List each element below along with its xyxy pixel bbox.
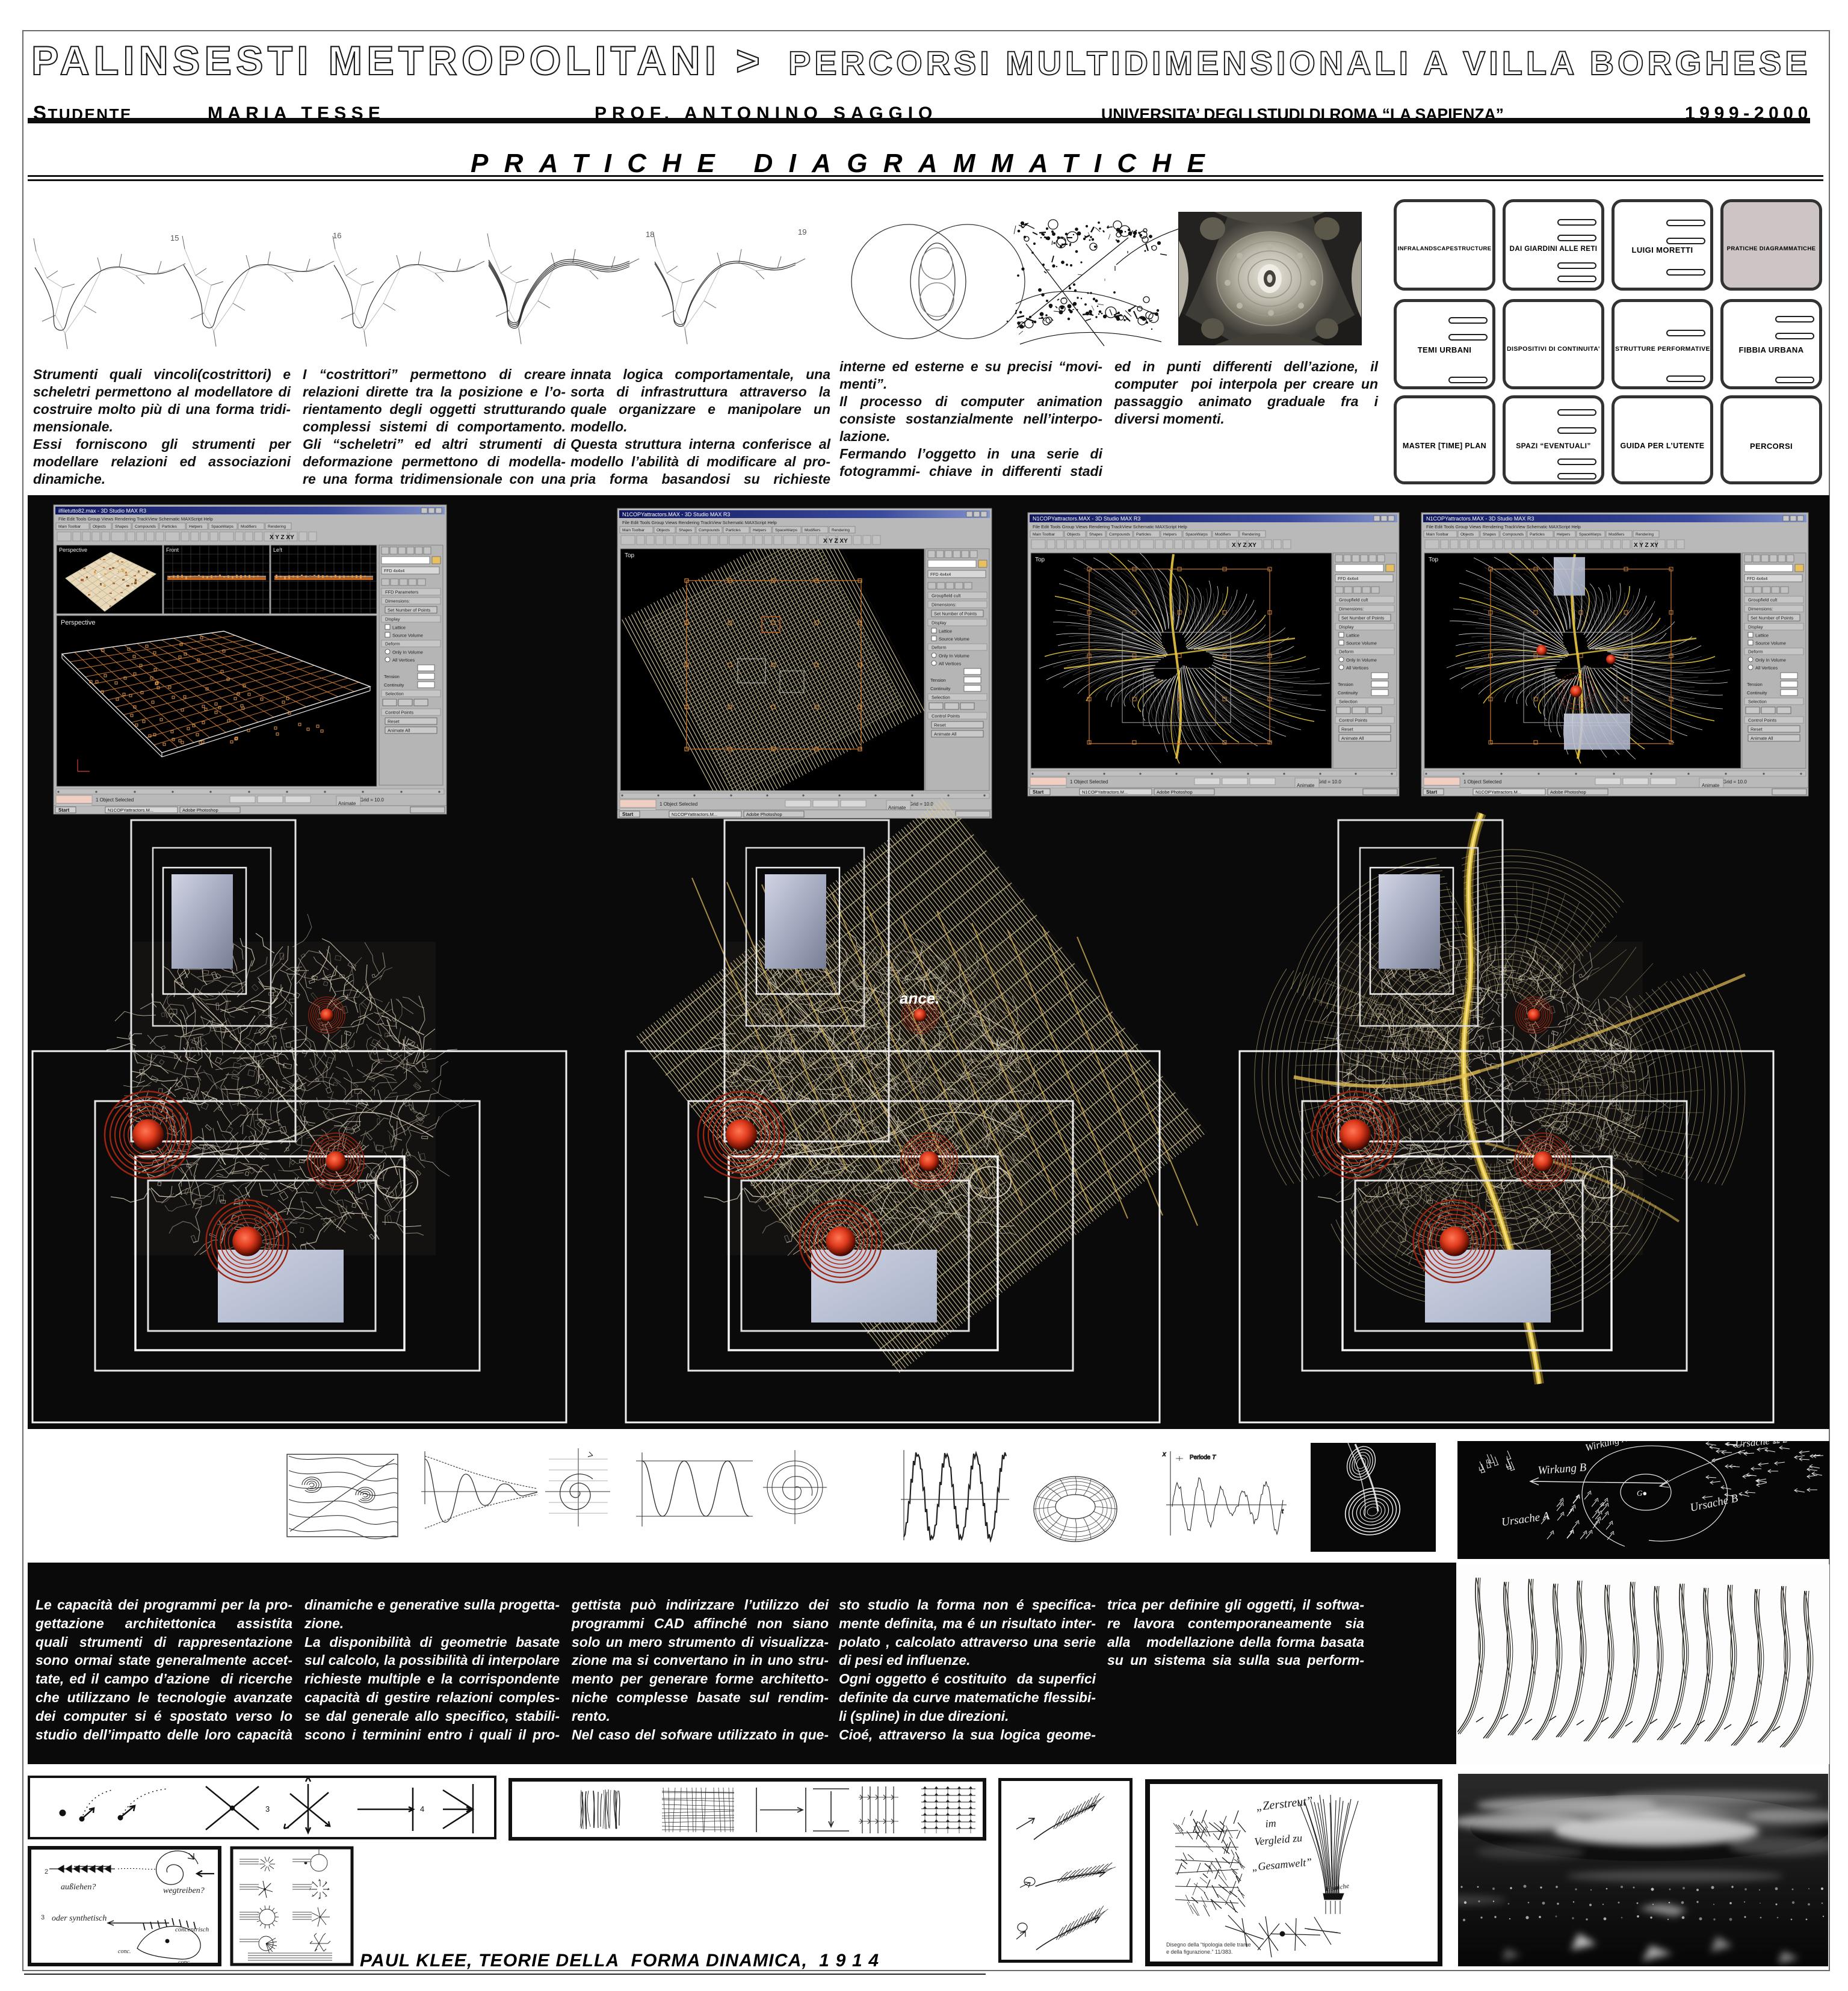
svg-text:Adobe Photoshop: Adobe Photoshop — [1157, 789, 1193, 795]
svg-text:Shapes: Shapes — [1089, 532, 1103, 537]
svg-text:Reset: Reset — [388, 719, 400, 724]
svg-text:Deform: Deform — [1339, 649, 1354, 655]
svg-text:Only In Volume: Only In Volume — [392, 650, 423, 655]
svg-text:Grid = 10.0: Grid = 10.0 — [1723, 779, 1747, 785]
svg-text:Helpers: Helpers — [1557, 532, 1571, 537]
svg-text:Main Toolbar: Main Toolbar — [1033, 532, 1055, 537]
svg-text:Selection: Selection — [1748, 699, 1767, 705]
svg-text:Tension: Tension — [1338, 682, 1353, 687]
svg-text:Compounds: Compounds — [1503, 532, 1524, 537]
svg-text:Reset: Reset — [1341, 727, 1354, 732]
svg-text:Animate All: Animate All — [1751, 736, 1773, 741]
svg-text:Particles: Particles — [1136, 532, 1152, 537]
svg-text:Grid = 10.0: Grid = 10.0 — [909, 801, 933, 807]
svg-text:conc.: conc. — [178, 1959, 191, 1966]
svg-text:Source Volume: Source Volume — [392, 633, 423, 638]
svg-text:Reset: Reset — [934, 723, 947, 728]
svg-text:Modifiers: Modifiers — [241, 525, 257, 529]
svg-text:Top: Top — [1429, 557, 1439, 563]
svg-text:Objects: Objects — [93, 525, 107, 529]
svg-text:Display: Display — [1748, 625, 1763, 630]
svg-text:FFD 4x4x4: FFD 4x4x4 — [930, 573, 951, 577]
svg-text:Deform: Deform — [385, 641, 400, 647]
svg-text:außiehen?: außiehen? — [61, 1883, 96, 1892]
svg-text:Only In Volume: Only In Volume — [939, 653, 969, 659]
svg-text:e della figurazione.” 11/383.: e della figurazione.” 11/383. — [1166, 1949, 1232, 1955]
svg-text:Modifiers: Modifiers — [1215, 532, 1231, 537]
svg-text:1 Object Selected: 1 Object Selected — [1070, 779, 1108, 785]
svg-text:Compounds: Compounds — [135, 525, 156, 529]
svg-text:FFD 4x4x4: FFD 4x4x4 — [384, 569, 404, 573]
svg-text:N1COPYattractors.MAX - 3D Stud: N1COPYattractors.MAX - 3D Studio MAX R3 — [1426, 516, 1534, 522]
svg-text:15: 15 — [170, 233, 179, 242]
svg-text:Display: Display — [385, 617, 400, 622]
svg-text:Animate All: Animate All — [934, 732, 957, 737]
svg-text:Display: Display — [932, 620, 947, 626]
svg-text:Continuity: Continuity — [384, 682, 404, 688]
svg-text:Rendering: Rendering — [268, 525, 286, 529]
svg-text:FFD 4x4x4: FFD 4x4x4 — [1338, 577, 1358, 581]
svg-text:Deform: Deform — [932, 645, 947, 650]
svg-text:Periode T: Periode T — [1190, 1454, 1216, 1461]
svg-text:4: 4 — [420, 1804, 424, 1814]
svg-text:File Edit Tools Group Views Re: File Edit Tools Group Views Rendering Tr… — [58, 516, 213, 522]
svg-text:X Y Z XY: X Y Z XY — [823, 538, 848, 545]
svg-text:Groupfield cult: Groupfield cult — [932, 593, 961, 599]
svg-text:Set Number of Points: Set Number of Points — [934, 611, 977, 617]
svg-text:Control Points: Control Points — [1748, 718, 1776, 723]
svg-text:All Vertices: All Vertices — [1346, 665, 1368, 671]
svg-text:Start: Start — [58, 807, 70, 813]
svg-text:Particles: Particles — [726, 528, 741, 532]
svg-text:Modifiers: Modifiers — [805, 528, 821, 532]
svg-text:Helpers: Helpers — [1163, 532, 1177, 537]
svg-text:Helpers: Helpers — [189, 525, 203, 529]
svg-text:X Y Z XY: X Y Z XY — [1232, 542, 1256, 549]
svg-text:Lattice: Lattice — [1755, 633, 1769, 638]
svg-text:Animate All: Animate All — [1341, 736, 1364, 741]
svg-text:X Y Z XY: X Y Z XY — [1634, 542, 1658, 549]
svg-text:Perspective: Perspective — [61, 619, 95, 626]
svg-text:Helpers: Helpers — [753, 528, 767, 532]
svg-text:Control Points: Control Points — [1339, 718, 1367, 723]
svg-text:Set Number of Points: Set Number of Points — [1751, 616, 1794, 621]
svg-text:Compounds: Compounds — [1109, 532, 1131, 537]
svg-text:Selection: Selection — [1339, 699, 1358, 705]
svg-text:im: im — [1265, 1817, 1276, 1830]
svg-text:Tension: Tension — [384, 674, 400, 679]
svg-text:Deform: Deform — [1748, 649, 1763, 655]
svg-text:Objects: Objects — [1067, 532, 1081, 537]
svg-text:N1COPYattractors.M...: N1COPYattractors.M... — [1082, 789, 1128, 795]
svg-text:Left: Left — [273, 547, 283, 553]
svg-text:Lattice: Lattice — [939, 629, 952, 634]
svg-text:All Vertices: All Vertices — [1755, 665, 1778, 671]
svg-text:Display: Display — [1339, 625, 1354, 630]
svg-text:Dimensions:: Dimensions: — [932, 602, 956, 608]
svg-text:Particles: Particles — [1530, 532, 1545, 537]
svg-text:Start: Start — [1033, 789, 1044, 795]
svg-text:Control Points: Control Points — [932, 714, 960, 719]
svg-text:Tension: Tension — [1747, 682, 1763, 687]
svg-text:Rendering: Rendering — [1242, 532, 1260, 537]
svg-text:FFD Parameters: FFD Parameters — [385, 590, 419, 595]
svg-text:Reset: Reset — [1751, 727, 1763, 732]
svg-text:File Edit Tools Group Views Re: File Edit Tools Group Views Rendering Tr… — [1426, 524, 1581, 529]
svg-text:ilfiletutto82.max - 3D Studio: ilfiletutto82.max - 3D Studio MAX R3 — [58, 508, 146, 514]
svg-text:Only In Volume: Only In Volume — [1346, 658, 1377, 663]
svg-text:Shapes: Shapes — [679, 528, 693, 532]
svg-text:Animate All: Animate All — [388, 728, 410, 733]
svg-text:Set Number of Points: Set Number of Points — [388, 608, 431, 613]
svg-text:16: 16 — [333, 231, 341, 240]
svg-text:Adobe Photoshop: Adobe Photoshop — [182, 807, 218, 813]
svg-text:Particles: Particles — [162, 525, 178, 529]
svg-text:Continuity: Continuity — [1747, 690, 1767, 696]
svg-text:Control Points: Control Points — [385, 710, 413, 715]
svg-text:Adobe Photoshop: Adobe Photoshop — [746, 812, 782, 817]
svg-text:Set Number of Points: Set Number of Points — [1341, 616, 1385, 621]
svg-text:Objects: Objects — [657, 528, 670, 532]
svg-text:Rendering: Rendering — [1636, 532, 1654, 537]
svg-text:Shapes: Shapes — [1483, 532, 1497, 537]
svg-text:N1COPYattractors.MAX - 3D Stud: N1COPYattractors.MAX - 3D Studio MAX R3 — [1033, 516, 1140, 522]
svg-text:Source Volume: Source Volume — [1755, 641, 1786, 646]
svg-text:1 Object Selected: 1 Object Selected — [96, 797, 134, 803]
svg-text:Adobe Photoshop: Adobe Photoshop — [1550, 789, 1586, 795]
svg-text:Continuity: Continuity — [1338, 690, 1358, 696]
svg-text:SpaceWarps: SpaceWarps — [775, 528, 798, 532]
svg-text:All Vertices: All Vertices — [939, 661, 961, 667]
svg-text:FFD 4x4x4: FFD 4x4x4 — [1747, 577, 1767, 581]
svg-text:Lattice: Lattice — [1346, 633, 1359, 638]
svg-text:Start: Start — [1426, 789, 1438, 795]
svg-text:Only In Volume: Only In Volume — [1755, 658, 1786, 663]
svg-text:Continuity: Continuity — [930, 686, 951, 691]
svg-text:Source Volume: Source Volume — [939, 637, 969, 642]
svg-text:X Y Z XY: X Y Z XY — [270, 534, 294, 541]
svg-text:3: 3 — [41, 1914, 45, 1921]
svg-text:All Vertices: All Vertices — [392, 658, 415, 663]
svg-text:N1COPYattractors.MAX - 3D Stud: N1COPYattractors.MAX - 3D Studio MAX R3 — [622, 511, 730, 517]
svg-text:wegtreiben?: wegtreiben? — [163, 1886, 205, 1895]
svg-text:File Edit Tools Group Views Re: File Edit Tools Group Views Rendering Tr… — [622, 520, 777, 525]
svg-text:t: t — [1282, 1508, 1284, 1515]
svg-text:G●: G● — [1637, 1489, 1647, 1498]
svg-text:Shapes: Shapes — [115, 525, 129, 529]
svg-text:1 Object Selected: 1 Object Selected — [660, 801, 697, 807]
svg-text:x: x — [1162, 1451, 1166, 1458]
svg-text:Tension: Tension — [930, 678, 946, 683]
svg-text:Dimensions:: Dimensions: — [1748, 607, 1773, 612]
svg-text:Grid = 10.0: Grid = 10.0 — [1317, 779, 1341, 785]
svg-text:N1COPYattractors.M...: N1COPYattractors.M... — [1476, 789, 1521, 795]
svg-text:ance.: ance. — [900, 989, 940, 1007]
svg-text:SpaceWarps: SpaceWarps — [211, 525, 234, 529]
svg-text:conc.: conc. — [118, 1948, 131, 1955]
svg-text:Main Toolbar: Main Toolbar — [622, 528, 645, 532]
svg-text:Source Volume: Source Volume — [1346, 641, 1377, 646]
svg-text:Grid = 10.0: Grid = 10.0 — [360, 797, 384, 803]
svg-text:Compounds: Compounds — [699, 528, 720, 532]
svg-text:Rendering: Rendering — [832, 528, 850, 532]
svg-text:File Edit Tools Group Views Re: File Edit Tools Group Views Rendering Tr… — [1033, 524, 1187, 529]
svg-text:Main Toolbar: Main Toolbar — [1426, 532, 1449, 537]
svg-text:Selection: Selection — [385, 691, 404, 697]
svg-text:Main Toolbar: Main Toolbar — [58, 525, 81, 529]
svg-text:Groupfield cult: Groupfield cult — [1339, 597, 1368, 603]
svg-text:Selection: Selection — [932, 695, 950, 700]
svg-text:N1COPYattractors.M...: N1COPYattractors.M... — [108, 807, 153, 813]
svg-text:Groupfield cult: Groupfield cult — [1748, 597, 1778, 603]
svg-text:SpaceWarps: SpaceWarps — [1185, 532, 1208, 537]
svg-text:Dimensions:: Dimensions: — [385, 599, 410, 604]
svg-text:N1COPYattractors.M...: N1COPYattractors.M... — [672, 812, 717, 817]
svg-text:19: 19 — [798, 227, 806, 236]
svg-text:Lattice: Lattice — [392, 625, 406, 631]
svg-text:Top: Top — [625, 552, 635, 559]
svg-text:Objects: Objects — [1460, 532, 1474, 537]
svg-text:Dimensions:: Dimensions: — [1339, 607, 1364, 612]
svg-text:1 Object Selected: 1 Object Selected — [1463, 779, 1501, 785]
svg-text:Perspective: Perspective — [59, 547, 87, 553]
svg-text:18: 18 — [646, 230, 654, 239]
svg-text:Start: Start — [622, 812, 634, 817]
svg-text:Disegno della “tipologia delle: Disegno della “tipologia delle trame — [1166, 1942, 1251, 1948]
svg-text:SpaceWarps: SpaceWarps — [1579, 532, 1602, 537]
svg-text:Top: Top — [1035, 557, 1045, 563]
svg-text:Modifiers: Modifiers — [1609, 532, 1625, 537]
svg-text:2: 2 — [45, 1868, 48, 1875]
svg-text:concentrisch: concentrisch — [175, 1926, 209, 1933]
svg-text:oder synthetisch: oder synthetisch — [52, 1914, 107, 1923]
svg-text:3: 3 — [265, 1804, 270, 1814]
